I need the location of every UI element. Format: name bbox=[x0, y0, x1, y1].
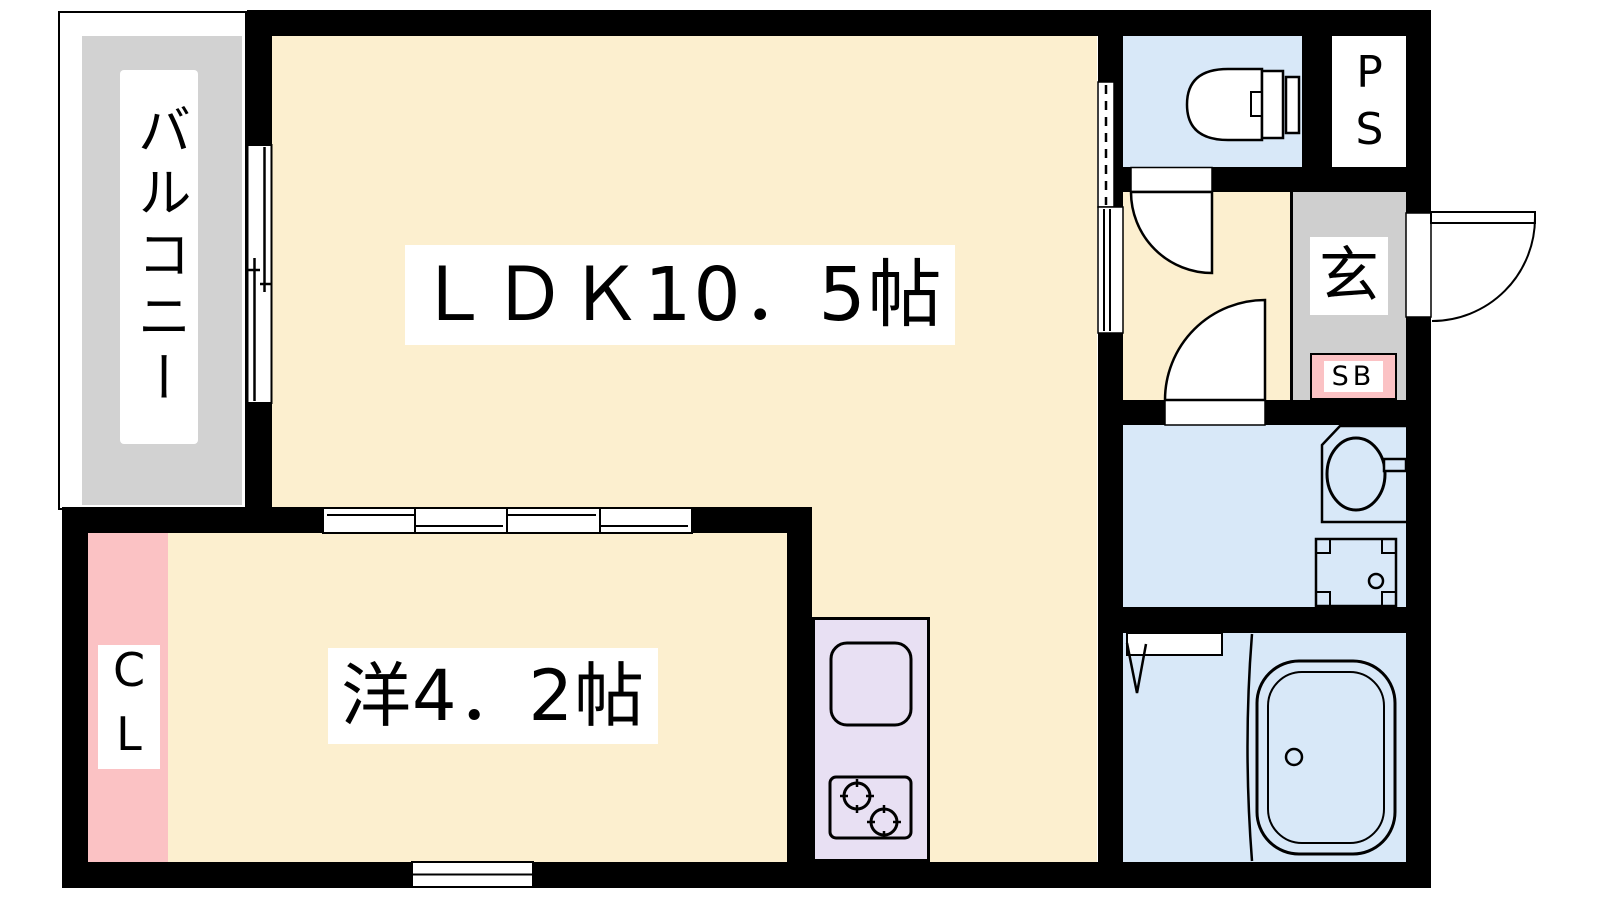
wall-ldk-window bbox=[247, 10, 272, 510]
wall-ps-left bbox=[1302, 36, 1332, 167]
wall-genkan-bottom bbox=[1123, 400, 1406, 425]
wall-bottom bbox=[62, 862, 1431, 888]
pipe-space-label: PS bbox=[1332, 40, 1406, 167]
closet-label: CL bbox=[98, 645, 160, 769]
shoe-box: SB bbox=[1310, 353, 1397, 400]
western-room-label: 洋4．2帖 bbox=[328, 648, 658, 744]
kitchen-unit bbox=[812, 617, 930, 862]
wall-west-left bbox=[62, 507, 88, 888]
washroom-floor bbox=[1123, 425, 1406, 607]
wall-kitchen-side bbox=[787, 507, 812, 862]
wall-western-top bbox=[62, 507, 812, 533]
wall-toilet-bottom bbox=[1123, 167, 1406, 192]
hall-genkan-divider bbox=[1290, 192, 1293, 400]
hallway-floor bbox=[1123, 192, 1290, 400]
wall-ldk-right bbox=[1098, 36, 1123, 862]
entrance-label: 玄 bbox=[1310, 237, 1388, 315]
wall-washroom-bottom bbox=[1123, 607, 1406, 633]
toilet-room-floor bbox=[1123, 36, 1302, 167]
floor-plan: バルコニー ＬＤＫ10．5帖 洋4．2帖 CL 玄 PS SB bbox=[0, 0, 1600, 900]
balcony-label: バルコニー bbox=[120, 70, 198, 444]
bathroom-floor bbox=[1123, 633, 1406, 862]
wall-top bbox=[247, 10, 1431, 36]
ldk-label: ＬＤＫ10．5帖 bbox=[405, 245, 955, 345]
shoe-box-label: SB bbox=[1324, 361, 1384, 393]
wall-right bbox=[1406, 10, 1431, 888]
